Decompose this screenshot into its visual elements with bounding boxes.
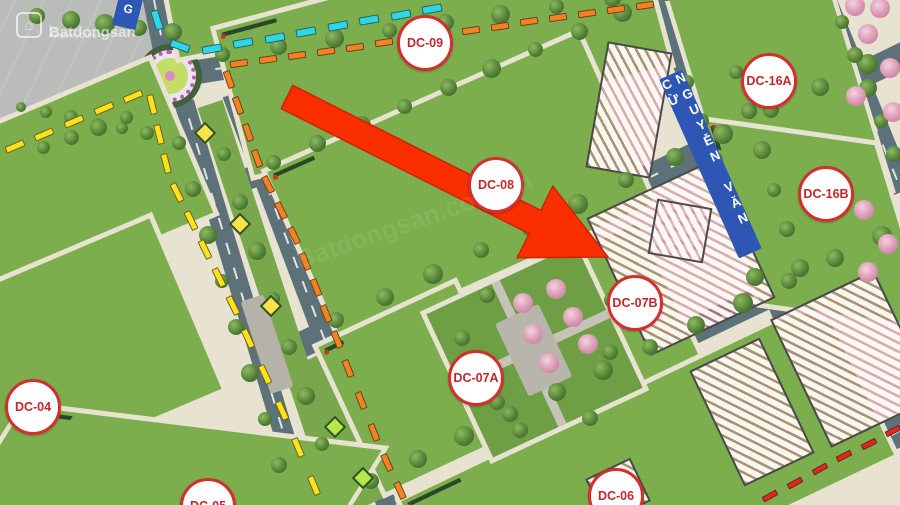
tree-icon <box>325 29 344 48</box>
block-label-dc07a: DC-07A <box>448 350 504 406</box>
blossom-tree-icon <box>858 262 878 282</box>
tree-icon <box>16 102 26 112</box>
tree-icon <box>521 218 539 236</box>
tree-icon <box>666 148 684 166</box>
tree-icon <box>90 119 107 136</box>
watermark-logo-icon: ⌂ <box>16 12 42 38</box>
blossom-tree-icon <box>883 102 900 122</box>
tree-icon <box>886 146 900 162</box>
tree-icon <box>397 99 412 114</box>
tree-icon <box>593 360 613 380</box>
tree-icon <box>376 288 394 306</box>
tree-icon <box>64 130 79 145</box>
tree-icon <box>40 106 52 118</box>
blossom-tree-icon <box>563 307 583 327</box>
tree-icon <box>315 437 329 451</box>
tree-icon <box>37 141 50 154</box>
building-footprint <box>648 199 713 264</box>
block-label-dc07b: DC-07B <box>607 275 663 331</box>
tree-icon <box>548 383 566 401</box>
tree-icon <box>791 259 809 277</box>
blossom-tree-icon <box>523 324 543 344</box>
tree-icon <box>248 242 266 260</box>
tree-icon <box>779 221 795 237</box>
master-plan-map: NGUYỄN VĂN CỪ G DC-09 DC-08 DC-07A DC-07… <box>0 0 900 505</box>
tree-icon <box>120 111 133 124</box>
tree-icon <box>602 344 618 360</box>
tree-icon <box>753 141 771 159</box>
tree-icon <box>271 457 287 473</box>
tree-icon <box>297 387 315 405</box>
tree-icon <box>767 183 781 197</box>
blossom-tree-icon <box>878 234 898 254</box>
roundabout-center <box>165 71 175 81</box>
tree-icon <box>352 116 371 135</box>
watermark-sub: by PropertyGuru <box>49 25 97 40</box>
tree-icon <box>116 122 128 134</box>
blossom-tree-icon <box>845 0 865 16</box>
watermark: ⌂ Batdongsan by PropertyGuru <box>16 12 49 38</box>
tree-icon <box>746 268 764 286</box>
blossom-tree-icon <box>546 279 566 299</box>
blossom-tree-icon <box>880 58 900 78</box>
blossom-tree-icon <box>539 353 559 373</box>
tree-icon <box>512 422 528 438</box>
blossom-tree-icon <box>513 293 533 313</box>
tree-icon <box>571 23 588 40</box>
blossom-tree-icon <box>858 24 878 44</box>
tree-icon <box>454 330 470 346</box>
park-plaza <box>495 304 572 397</box>
block-label-dc09: DC-09 <box>397 15 453 71</box>
tree-icon <box>733 293 753 313</box>
tree-icon <box>811 78 829 96</box>
tree-icon <box>409 450 427 468</box>
tree-icon <box>258 412 272 426</box>
blossom-tree-icon <box>578 334 598 354</box>
blossom-tree-icon <box>846 86 866 106</box>
blossom-tree-icon <box>854 200 874 220</box>
block-label-dc04: DC-04 <box>5 379 61 435</box>
blossom-tree-icon <box>870 0 890 18</box>
tree-icon <box>568 194 588 214</box>
tree-icon <box>423 264 443 284</box>
tree-icon <box>479 287 495 303</box>
tree-icon <box>440 79 457 96</box>
block-label-dc16b: DC-16B <box>798 166 854 222</box>
tree-icon <box>642 339 658 355</box>
block-label-dc16a: DC-16A <box>741 53 797 109</box>
tree-icon <box>582 410 598 426</box>
